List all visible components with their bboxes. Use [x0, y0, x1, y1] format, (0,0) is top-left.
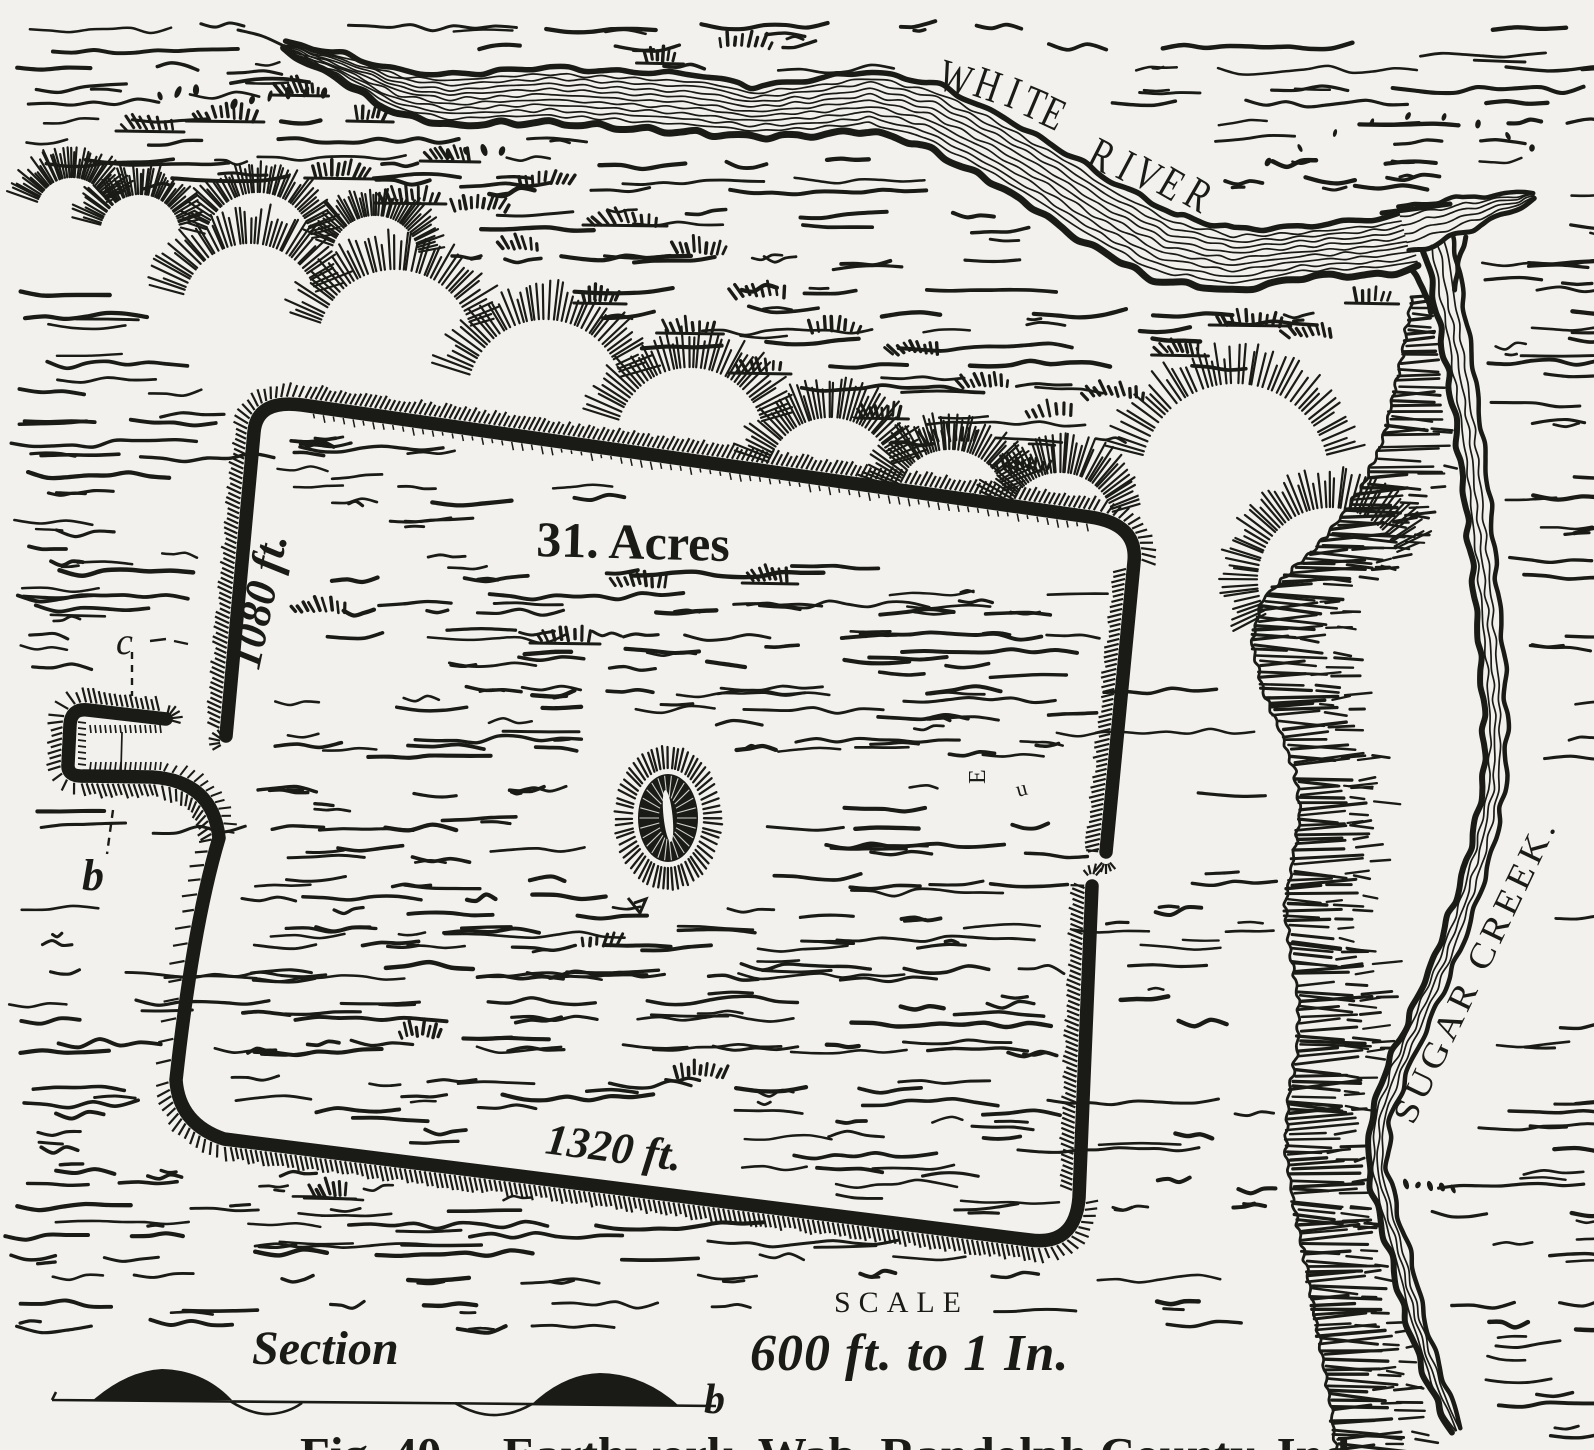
svg-text:E: E [965, 769, 991, 784]
svg-text:600 ft. to 1 In.: 600 ft. to 1 In. [750, 1325, 1069, 1382]
svg-text:b: b [704, 1377, 725, 1423]
svg-text:SCALE: SCALE [834, 1286, 969, 1319]
svg-text:Section: Section [252, 1322, 399, 1375]
svg-text:c: c [116, 621, 133, 663]
svg-text:Fig. 40.—Earthwork, Wab. Rando: Fig. 40.—Earthwork, Wab. Randolph County… [300, 1427, 1362, 1450]
svg-text:31. Acres: 31. Acres [536, 511, 731, 572]
svg-text:b: b [82, 851, 104, 900]
